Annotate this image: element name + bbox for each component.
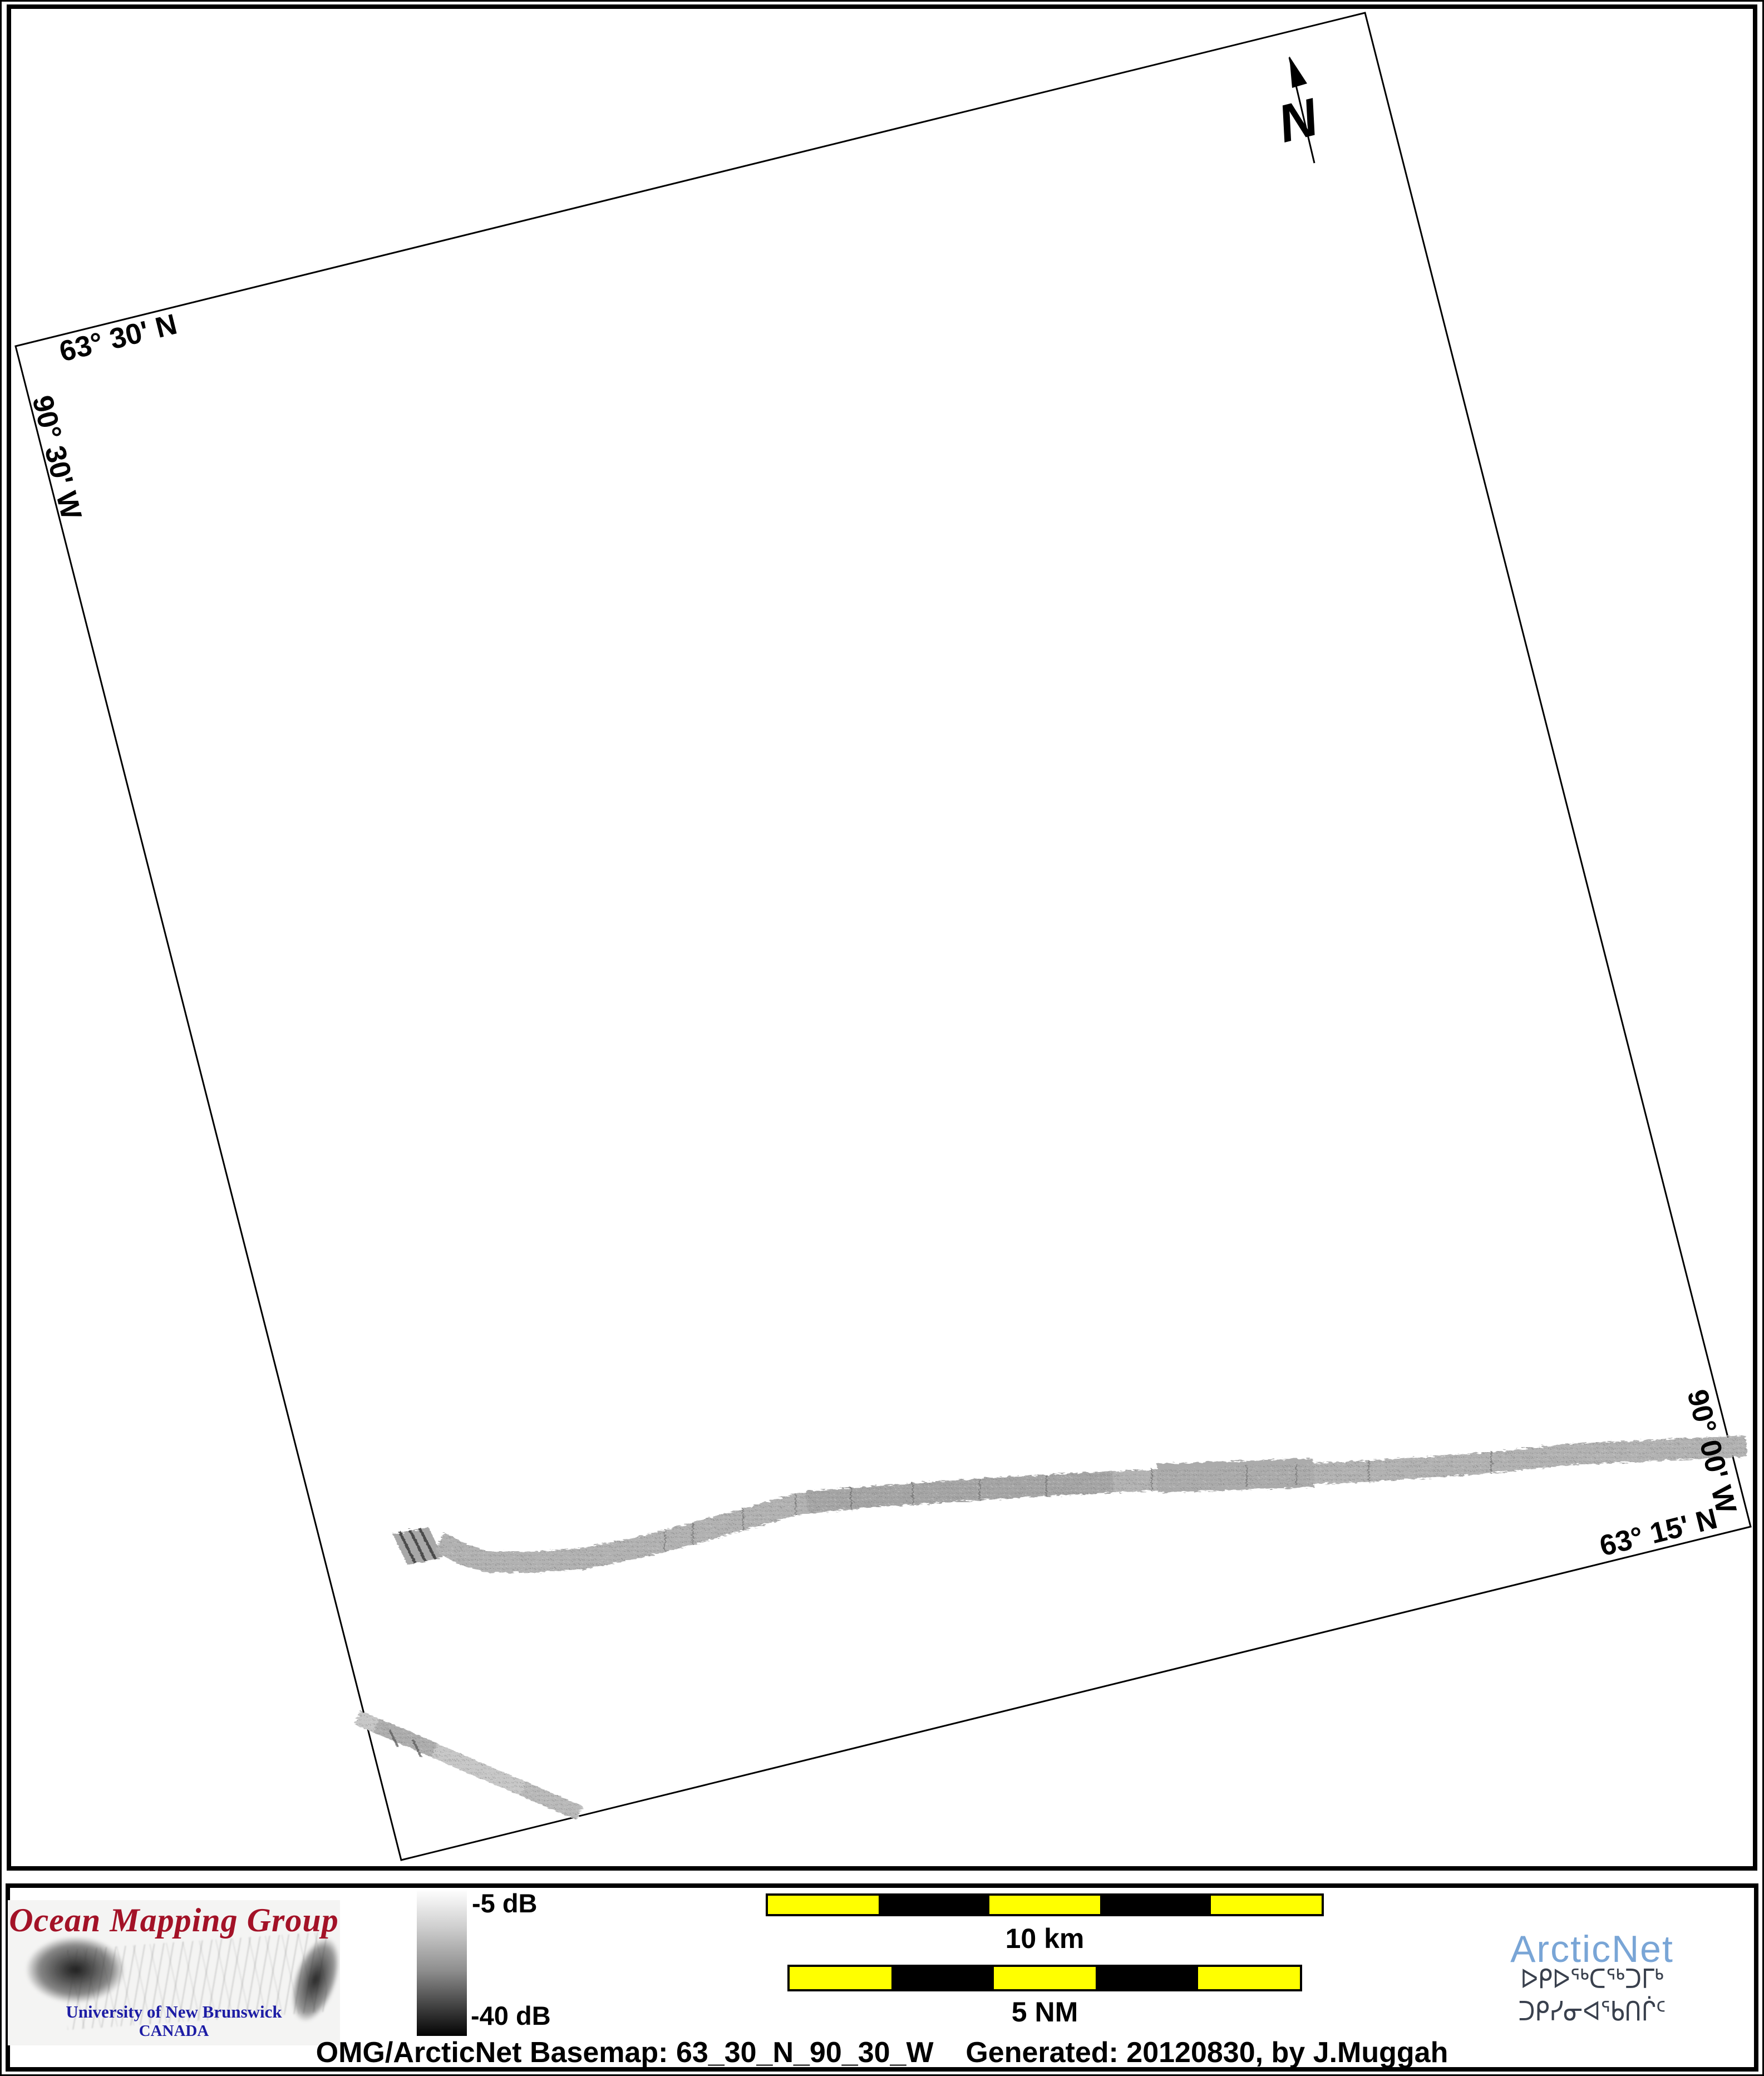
map-canvas: 63° 30' N 90° 30' W 90° 00' W 63° 15' N … <box>0 0 1764 1878</box>
scalebar-segment <box>989 1896 1100 1914</box>
map-boundary <box>16 13 1751 1860</box>
scalebar-km-label: 10 km <box>766 1925 1324 1952</box>
scalebar-segment <box>1211 1896 1322 1914</box>
colorbar-min-label: -40 dB <box>471 2003 551 2029</box>
basemap-caption: OMG/ArcticNet Basemap: 63_30_N_90_30_W G… <box>0 2038 1764 2067</box>
scalebar-segment <box>790 1967 891 1989</box>
scalebar-segment <box>879 1896 989 1914</box>
omg-logo: Ocean Mapping Group University of New Br… <box>8 1900 340 2045</box>
scalebar-segment <box>1198 1967 1300 1989</box>
arcticnet-logo: ArcticNet <box>1422 1930 1762 1968</box>
scalebar-segment <box>1096 1967 1198 1989</box>
scalebar-nm-label: 5 NM <box>787 1998 1302 2026</box>
scalebar-nm <box>787 1965 1302 1991</box>
scalebar-segment <box>891 1967 993 1989</box>
scalebar-segment <box>994 1967 1096 1989</box>
scalebar-km <box>766 1893 1324 1916</box>
omg-logo-title: Ocean Mapping Group <box>8 1901 340 1940</box>
scalebar-segment <box>1100 1896 1211 1914</box>
arcticnet-inuktitut-label: ᐅᑭᐅᖅᑕᖅᑐᒥᒃ ᑐᑭᓯᓂᐊᖃᑎᒌᑦ <box>1446 1964 1738 2028</box>
scalebar-segment <box>768 1896 879 1914</box>
omg-logo-institution: University of New Brunswick <box>8 2002 340 2022</box>
colorbar-max-label: -5 dB <box>472 1890 538 1916</box>
backscatter-colorbar <box>417 1891 467 2036</box>
